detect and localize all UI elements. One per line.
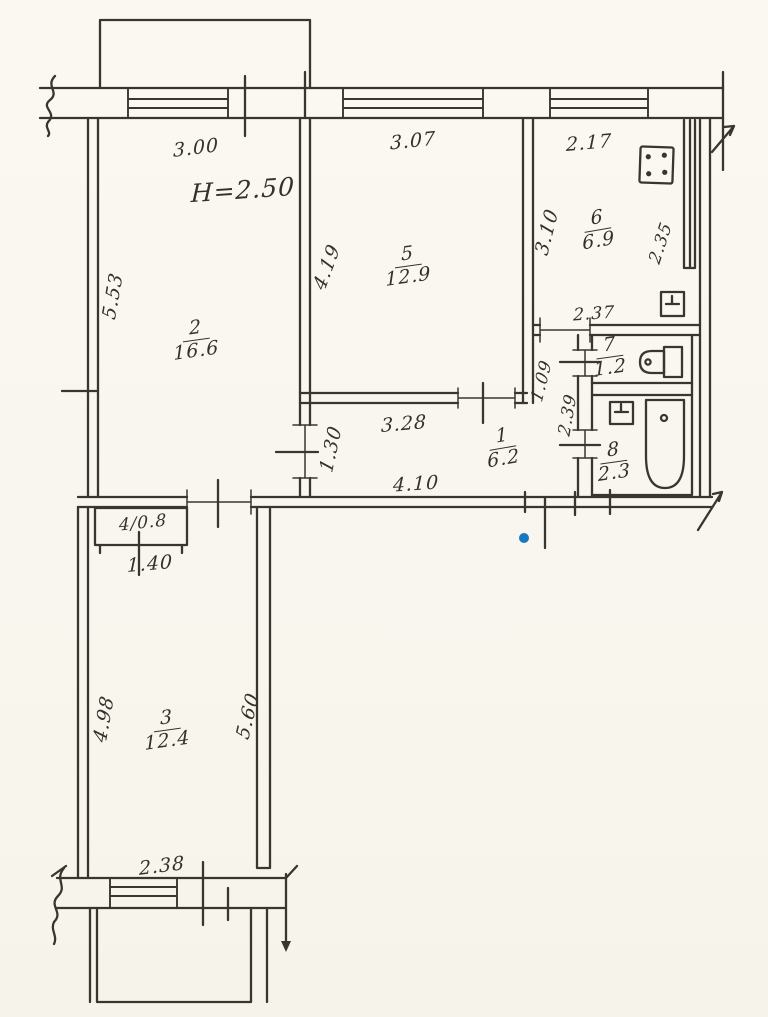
room7-area: 1.2	[594, 355, 628, 381]
room3-label: 3 12.4	[143, 705, 190, 755]
ceiling-height-note: H=2.50	[190, 172, 295, 208]
dim-room3-depth-right: 5.60	[232, 690, 264, 743]
dim-kitchen-door: 2.37	[573, 302, 615, 325]
dim-room3-depth-left: 4.98	[89, 693, 118, 745]
dim-room5-depth: 4.19	[309, 240, 345, 293]
room1-label: 1 6.2	[485, 424, 521, 473]
room5-label: 5 12.9	[384, 241, 431, 291]
room8-area: 2.3	[598, 460, 632, 486]
dim-room2-door: 1.30	[316, 423, 347, 475]
dim-passage-width: 1.09	[527, 357, 556, 404]
dim-kitchen-width: 2.17	[566, 130, 613, 156]
room2-label: 2 16.6	[172, 315, 219, 365]
room8-label: 8 2.3	[597, 438, 631, 486]
dim-room5-width: 3.07	[390, 128, 436, 155]
room1-area: 6.2	[487, 446, 521, 473]
dim-hall-top: 3.28	[381, 411, 428, 437]
room6-area: 6.9	[582, 228, 616, 255]
room6-label: 6 6.9	[580, 206, 616, 255]
dim-kitchen-depth: 3.10	[531, 206, 563, 259]
room5-area: 12.9	[385, 263, 432, 290]
closet-label: 4/0.8	[119, 510, 167, 535]
dim-closet-width: 1.40	[127, 551, 174, 577]
room2-area: 16.6	[173, 337, 220, 364]
dim-bath-depth: 2.39	[555, 392, 582, 439]
dim-hall-bottom: 4.10	[393, 471, 440, 496]
room7-label: 7 1.2	[593, 333, 627, 381]
dim-room2-width: 3.00	[173, 134, 219, 162]
floor-plan-scan: 3.00 H=2.50 3.07 2.17 5.53 4.19 3.10 2.3…	[0, 0, 768, 1017]
dim-room3-window: 2.38	[139, 852, 185, 880]
dim-shaft-depth: 2.35	[645, 219, 676, 267]
dim-room2-depth: 5.53	[98, 270, 127, 322]
plan-labels: 3.00 H=2.50 3.07 2.17 5.53 4.19 3.10 2.3…	[0, 0, 768, 1017]
room3-area: 12.4	[144, 727, 191, 754]
